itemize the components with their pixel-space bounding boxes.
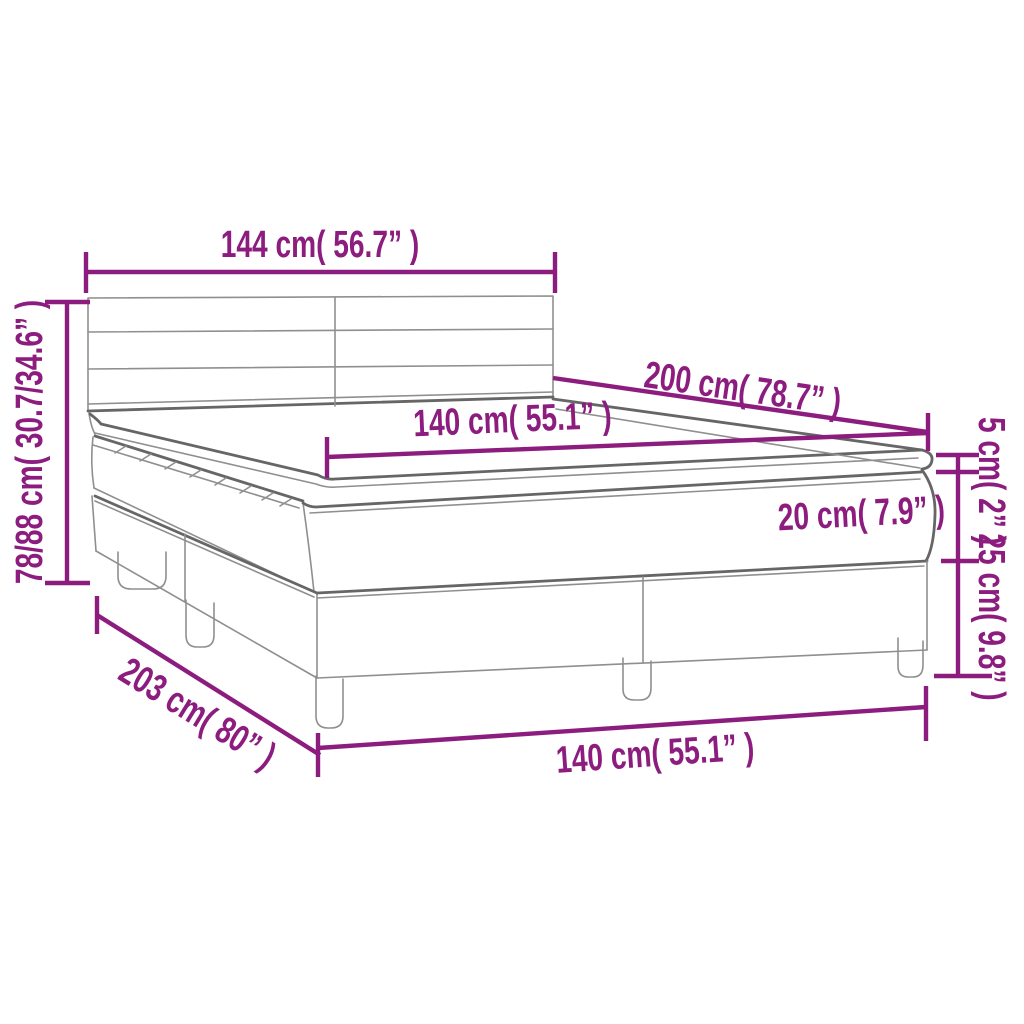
dim-label-bed-length: 200 cm( 78.7” ): [642, 354, 844, 424]
headboard-slat-line-2: [88, 365, 553, 369]
mattress-left-piping-bottom: [93, 445, 299, 508]
dim-label-base-height: 25 cm( 9.8” ): [970, 533, 1012, 700]
dim-base-length: 203 cm( 80” ): [97, 596, 320, 777]
dim-headboard-width: 144 cm( 56.7” ): [86, 224, 555, 293]
leg-near-corner: [316, 676, 343, 728]
dim-base-width: 140 cm( 55.1” ): [318, 686, 926, 782]
base-left-top-edge: [95, 496, 317, 593]
dim-label-overall-height: 78/88 cm( 30.7/34.6” ): [9, 300, 51, 584]
base-left-cap: [92, 496, 96, 551]
mattress-near-corner-edge: [303, 503, 314, 592]
dimension-diagram: 144 cm( 56.7” ) 78/88 cm( 30.7/34.6” ) 2…: [0, 0, 1024, 1024]
base-foot-top-edge: [317, 561, 927, 593]
leg-back-left: [118, 552, 166, 589]
dimension-annotations: 144 cm( 56.7” ) 78/88 cm( 30.7/34.6” ) 2…: [9, 224, 1012, 782]
dim-label-mattress-thickness: 20 cm( 7.9” ): [777, 489, 946, 540]
leg-right-corner: [898, 638, 923, 677]
dim-label-base-width: 140 cm( 55.1” ): [555, 726, 756, 782]
headboard-slat-line-1: [88, 329, 553, 332]
dim-label-mattress-width: 140 cm( 55.1” ): [412, 395, 612, 446]
dim-mattress-thickness: 20 cm( 7.9” ): [777, 489, 946, 540]
leg-mid-left: [186, 600, 214, 647]
base-foot-top-inner: [317, 566, 924, 598]
dim-label-topper-thickness: 5 cm( 2” ): [970, 417, 1012, 545]
dim-label-headboard-width: 144 cm( 56.7” ): [221, 224, 419, 266]
headboard: [88, 296, 553, 411]
base-left-top-inner: [95, 501, 314, 597]
base-foot-bottom-edge: [317, 650, 927, 678]
bed-diagram-svg: 144 cm( 56.7” ) 78/88 cm( 30.7/34.6” ) 2…: [0, 0, 1024, 1024]
dim-right-heights: 5 cm( 2” ) 25 cm( 9.8” ): [934, 417, 1012, 701]
dim-overall-height: 78/88 cm( 30.7/34.6” ): [9, 300, 90, 584]
